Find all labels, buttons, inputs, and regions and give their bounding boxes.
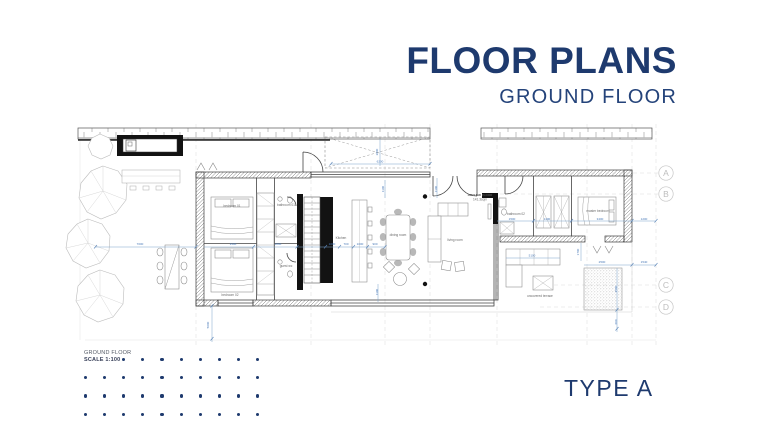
decor-dot (199, 413, 202, 416)
decor-dot (122, 394, 125, 397)
decor-dot (237, 394, 240, 397)
room-label: bedroom 01 (223, 204, 240, 208)
closets-right (536, 196, 569, 228)
decor-dot (237, 413, 240, 416)
decor-dot (84, 413, 87, 416)
room-label: Kitchen (336, 236, 347, 240)
dimension-label: 1100 (434, 185, 438, 192)
decor-dot (160, 394, 163, 397)
grid-bubble-label: A (663, 168, 669, 178)
room-label: 141.3sqm (473, 198, 487, 202)
decor-dot (256, 358, 259, 361)
grid-bubble-label: C (663, 280, 669, 290)
bathroom-02 (499, 198, 514, 234)
room-label: uncovered terrace (527, 294, 553, 298)
entry-canopy (117, 135, 183, 156)
trees (66, 134, 127, 322)
decor-dot (84, 394, 87, 397)
dimension-label: 5100 (529, 254, 536, 258)
header-block: FLOOR PLANS GROUND FLOOR (406, 42, 677, 109)
dimension-label: 6200 (377, 160, 384, 164)
decor-dot (141, 394, 144, 397)
dimension-label: 700 (343, 242, 348, 246)
type-label: TYPE A (564, 375, 654, 402)
decor-dot (141, 413, 144, 416)
dimension-label: 1700 (576, 248, 580, 255)
scale-floor-label: GROUND FLOOR (84, 350, 131, 357)
decor-dot (180, 376, 183, 379)
decor-dot (199, 358, 202, 361)
decor-dot (103, 394, 106, 397)
decor-dot (122, 376, 125, 379)
dimension-label: 1000 (357, 242, 364, 246)
decor-dot (103, 413, 106, 416)
dimension-label: 1500 (509, 217, 516, 221)
decor-dot (141, 358, 144, 361)
grid-bubble-label: B (663, 189, 669, 199)
dimension-label: 1100 (381, 185, 385, 192)
dot-grid-decor (84, 358, 284, 428)
dimension-label: 2500 (599, 260, 606, 264)
decor-dot (237, 376, 240, 379)
dimension-label: 900 (372, 242, 377, 246)
decor-dot (218, 358, 221, 361)
decor-dot (160, 358, 163, 361)
page-subtitle: GROUND FLOOR (406, 86, 677, 109)
patio-furniture (122, 170, 187, 289)
dimension-label: 1500 (230, 242, 237, 246)
room-label: bathroom 01 (277, 203, 295, 207)
decor-dot (160, 376, 163, 379)
dimension-label: 2000 (375, 148, 379, 155)
dimension-label: 2500 (614, 285, 618, 292)
dining-area (380, 209, 416, 266)
dimension-label: 1800 (275, 242, 282, 246)
decor-dot (256, 394, 259, 397)
decor-dot (160, 413, 163, 416)
dimension-label: 1000 (329, 242, 336, 246)
decor-dot (218, 376, 221, 379)
decor-dot (256, 376, 259, 379)
room-label: bedroom 02 (221, 293, 238, 297)
decor-dot (256, 413, 259, 416)
dimension-label: 600 (614, 319, 618, 324)
dimension-label: 1100 (544, 217, 551, 221)
closets-left (257, 193, 274, 295)
page-title: FLOOR PLANS (406, 42, 677, 81)
decor-dot (237, 358, 240, 361)
dimension-label: 1200 (641, 217, 648, 221)
stairs (304, 197, 320, 283)
decor-dot (180, 413, 183, 416)
room-label: bathroom 02 (507, 212, 525, 216)
decor-dot (141, 376, 144, 379)
decor-dot (103, 376, 106, 379)
decor-dot (122, 413, 125, 416)
decor-dot (199, 394, 202, 397)
room-label: GROUND FLOOR (468, 193, 493, 197)
decor-dot (180, 358, 183, 361)
decor-dot (84, 376, 87, 379)
dimension-label: 3400 (597, 217, 604, 221)
decor-dot (218, 394, 221, 397)
kitchen (352, 200, 372, 282)
decor-dot (218, 413, 221, 416)
grid-bubble-label: D (663, 302, 669, 312)
room-label: master bedroom (586, 209, 610, 213)
room-label: living room (447, 238, 463, 242)
decor-dot (122, 358, 125, 361)
room-label: dining room (390, 233, 407, 237)
dimension-label: 1540 (641, 260, 648, 264)
dimension-label: 1100 (375, 288, 379, 295)
dimension-label: 5000 (206, 321, 210, 328)
dimension-label: 7000 (137, 242, 144, 246)
decor-dot (180, 394, 183, 397)
room-label: guest wc (280, 264, 293, 268)
decor-dot (199, 376, 202, 379)
grid-bubbles: ABCD (659, 166, 673, 314)
